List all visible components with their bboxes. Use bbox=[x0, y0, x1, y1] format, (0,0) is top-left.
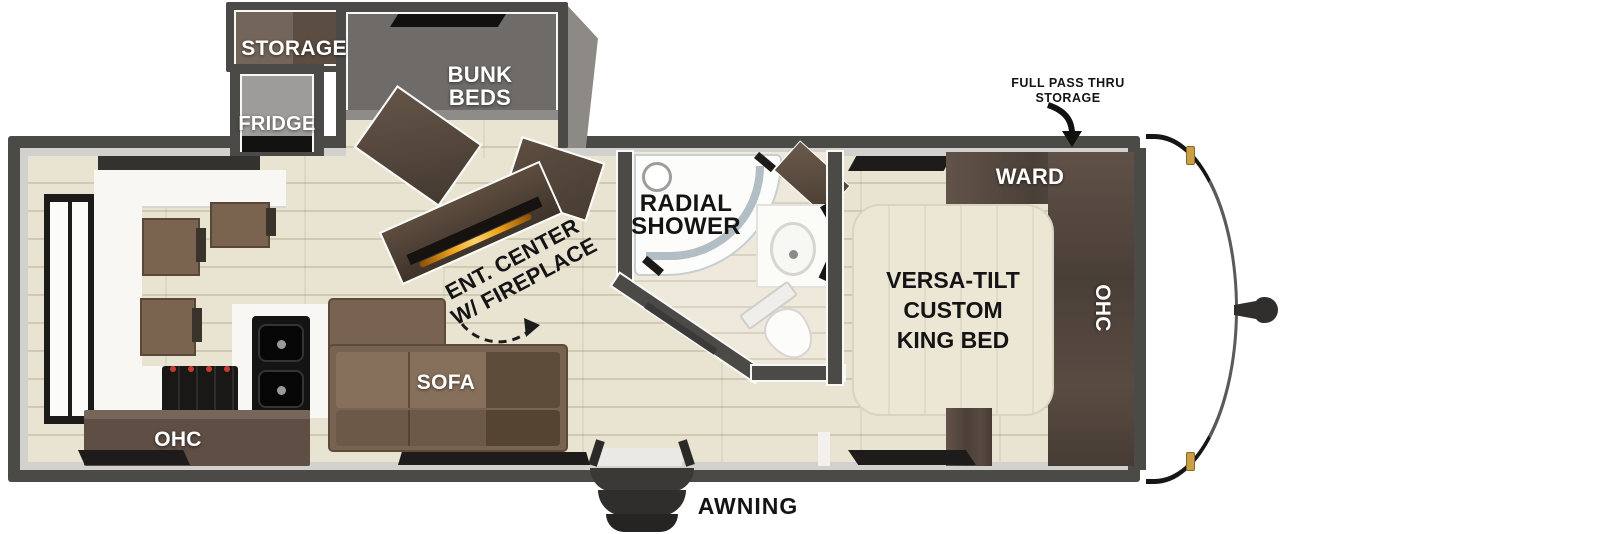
fridge-label: FRIDGE bbox=[217, 112, 337, 136]
entry-step bbox=[590, 468, 694, 492]
bedroom-ohc-label: OHC bbox=[1087, 262, 1117, 354]
stool-leg bbox=[192, 308, 202, 342]
shower-head-icon bbox=[642, 162, 672, 192]
front-cap bbox=[1146, 134, 1238, 484]
rear-window-pane bbox=[50, 202, 68, 416]
sofa-back bbox=[336, 410, 560, 446]
vanity-drain bbox=[789, 250, 798, 259]
sofa-label-text: SOFA bbox=[417, 371, 475, 395]
awning-label: AWNING bbox=[678, 493, 818, 519]
bottom-window-sofa bbox=[398, 452, 590, 465]
shower-label-line: SHOWER bbox=[631, 215, 741, 238]
radial-shower-label: RADIAL SHOWER bbox=[611, 190, 761, 240]
dinette-stool bbox=[210, 202, 270, 248]
bedroom-top-window bbox=[848, 156, 952, 171]
fridge-label-text: FRIDGE bbox=[238, 113, 315, 136]
king-bed-label-line: CUSTOM bbox=[903, 295, 1002, 325]
kitchen-ohc-label: OHC bbox=[128, 428, 228, 452]
sofa-label: SOFA bbox=[396, 371, 496, 395]
bottom-window-left bbox=[78, 450, 190, 465]
stove-knob bbox=[188, 366, 194, 372]
marker-light bbox=[1186, 452, 1195, 471]
marker-light bbox=[1186, 146, 1195, 165]
bedroom-divider-wall bbox=[828, 152, 842, 384]
entry-step bbox=[606, 514, 678, 532]
wardrobe-label: WARD bbox=[980, 165, 1080, 189]
stove-knob bbox=[224, 366, 230, 372]
rear-window-pane bbox=[72, 202, 88, 416]
bunk-beds-label: BUNK BEDS bbox=[425, 60, 535, 112]
stove-knob bbox=[170, 366, 176, 372]
stove bbox=[162, 366, 238, 414]
entry-threshold bbox=[596, 448, 682, 466]
sink-drain bbox=[277, 340, 286, 349]
pass-thru-line: FULL PASS THRU bbox=[1011, 76, 1124, 91]
bedroom-bottom-window bbox=[848, 450, 976, 465]
stove-knob bbox=[206, 366, 212, 372]
wardrobe-label-text: WARD bbox=[996, 164, 1064, 190]
bunk-label-line: BEDS bbox=[449, 86, 511, 109]
dinette-stool bbox=[140, 298, 196, 356]
dinette-stool bbox=[142, 218, 200, 276]
hitch-coupler bbox=[1254, 297, 1278, 323]
floorplan-canvas: VERSA-TILT CUSTOM KING BED FULL PASS THR… bbox=[0, 0, 1600, 534]
kitchen-ohc-label-text: OHC bbox=[154, 428, 202, 452]
vanity-basin bbox=[770, 222, 816, 276]
storage-label: STORAGE bbox=[234, 36, 354, 62]
stool-leg bbox=[196, 228, 206, 262]
king-bed-label-line: VERSA-TILT bbox=[886, 265, 1020, 295]
king-bed: VERSA-TILT CUSTOM KING BED bbox=[854, 206, 1052, 414]
bedroom-door-jamb bbox=[818, 432, 830, 466]
shower-label-line: RADIAL bbox=[640, 192, 732, 215]
bedroom-ohc-label-text: OHC bbox=[1090, 284, 1114, 332]
entry-step bbox=[598, 490, 686, 516]
pass-thru-arrow-icon bbox=[1036, 102, 1086, 148]
stool-leg bbox=[266, 208, 276, 236]
king-bed-label-line: KING BED bbox=[897, 325, 1009, 355]
awning-label-text: AWNING bbox=[698, 493, 799, 520]
fridge-front bbox=[242, 136, 312, 152]
kitchen-top-window bbox=[98, 156, 260, 170]
kitchen-sink bbox=[252, 316, 310, 414]
slideout-exterior bbox=[566, 4, 598, 148]
sofa-body bbox=[328, 344, 568, 452]
bunk-label-line: BUNK bbox=[448, 63, 513, 86]
storage-label-text: STORAGE bbox=[241, 37, 347, 61]
kitchen-side-counter bbox=[94, 170, 142, 422]
rear-window-frame bbox=[44, 194, 98, 424]
bunk-window bbox=[390, 14, 506, 27]
sink-drain bbox=[277, 386, 286, 395]
